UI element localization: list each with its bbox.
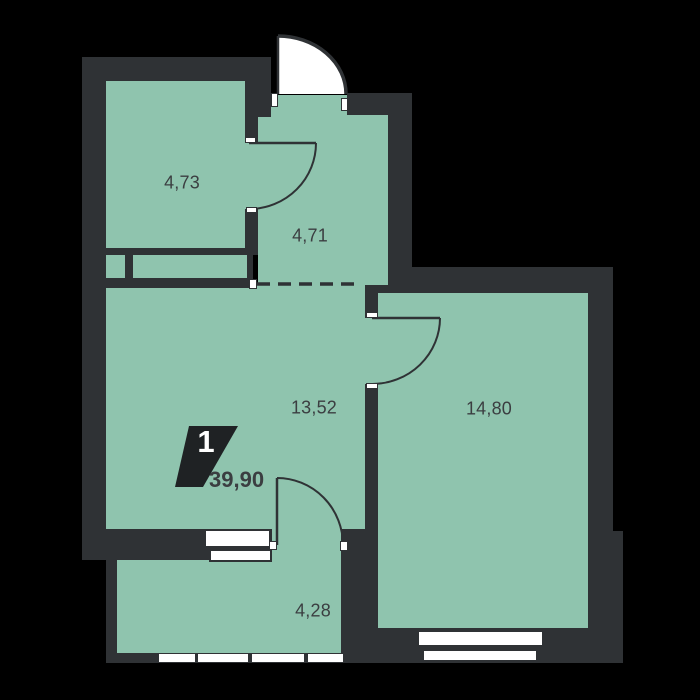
room-area-label-14-80: 14,80 [466, 399, 512, 420]
balcony-glazing-4 [307, 653, 344, 663]
room-area-label-13-52: 13,52 [291, 398, 337, 419]
balcony-glazing-3 [251, 653, 305, 663]
balcony-glazing-1 [158, 653, 196, 663]
wall-right [588, 267, 613, 531]
balcony-glazing-2 [197, 653, 249, 663]
room-area-label-4-28: 4,28 [295, 601, 331, 622]
room-area-label-4-71: 4,71 [292, 226, 328, 247]
door-4-73-jamb-bottom [246, 207, 257, 213]
doorway-room-14-80 [365, 318, 378, 384]
floor-plan: 4,73 4,71 13,52 14,80 4,28 1 39,90 [0, 0, 700, 700]
entrance-jamb-left [271, 93, 278, 107]
door-14-80-jamb-top [366, 312, 378, 318]
door-14-80-jamb-bottom [366, 383, 378, 389]
wall-niche-right [247, 255, 253, 278]
doorway-balcony [272, 529, 341, 560]
room-area-label-4-73: 4,73 [164, 173, 200, 194]
floor-room-14-80 [378, 293, 588, 628]
window-living-inner [209, 549, 272, 562]
wall-balcony-left [106, 529, 117, 663]
window-14-80-inner [422, 649, 538, 662]
entrance-jamb-right [341, 98, 348, 111]
window-living-outer [204, 529, 271, 548]
wall-hallway-right [388, 93, 412, 267]
door-4-73-jamb-top [245, 137, 256, 143]
floor-room-4-73 [106, 81, 245, 248]
wall-niche-bottom [100, 278, 253, 288]
balcony-jamb-right [340, 541, 348, 551]
wall-right-step [588, 531, 623, 663]
entrance-door-arc [278, 36, 346, 94]
floor-niche-long [133, 255, 247, 278]
floor-hallway [258, 95, 388, 286]
wall-niche-top [100, 248, 253, 255]
wall-top [82, 57, 271, 81]
wall-14-80-top [388, 267, 613, 293]
wall-left [82, 57, 106, 560]
boundary-post-left [249, 279, 257, 289]
balcony-jamb-left [269, 541, 277, 550]
wall-4-73-right-upper [245, 81, 258, 143]
apartment-type-number: 1 [189, 424, 223, 460]
wall-niche-divider [125, 255, 133, 278]
total-area-label: 39,90 [209, 467, 264, 493]
wall-divider-lower [365, 384, 378, 530]
doorway-room-4-73 [245, 143, 258, 209]
window-14-80-outer [417, 630, 544, 647]
entrance-door-swing [278, 36, 346, 94]
floor-niche-small [106, 255, 125, 278]
